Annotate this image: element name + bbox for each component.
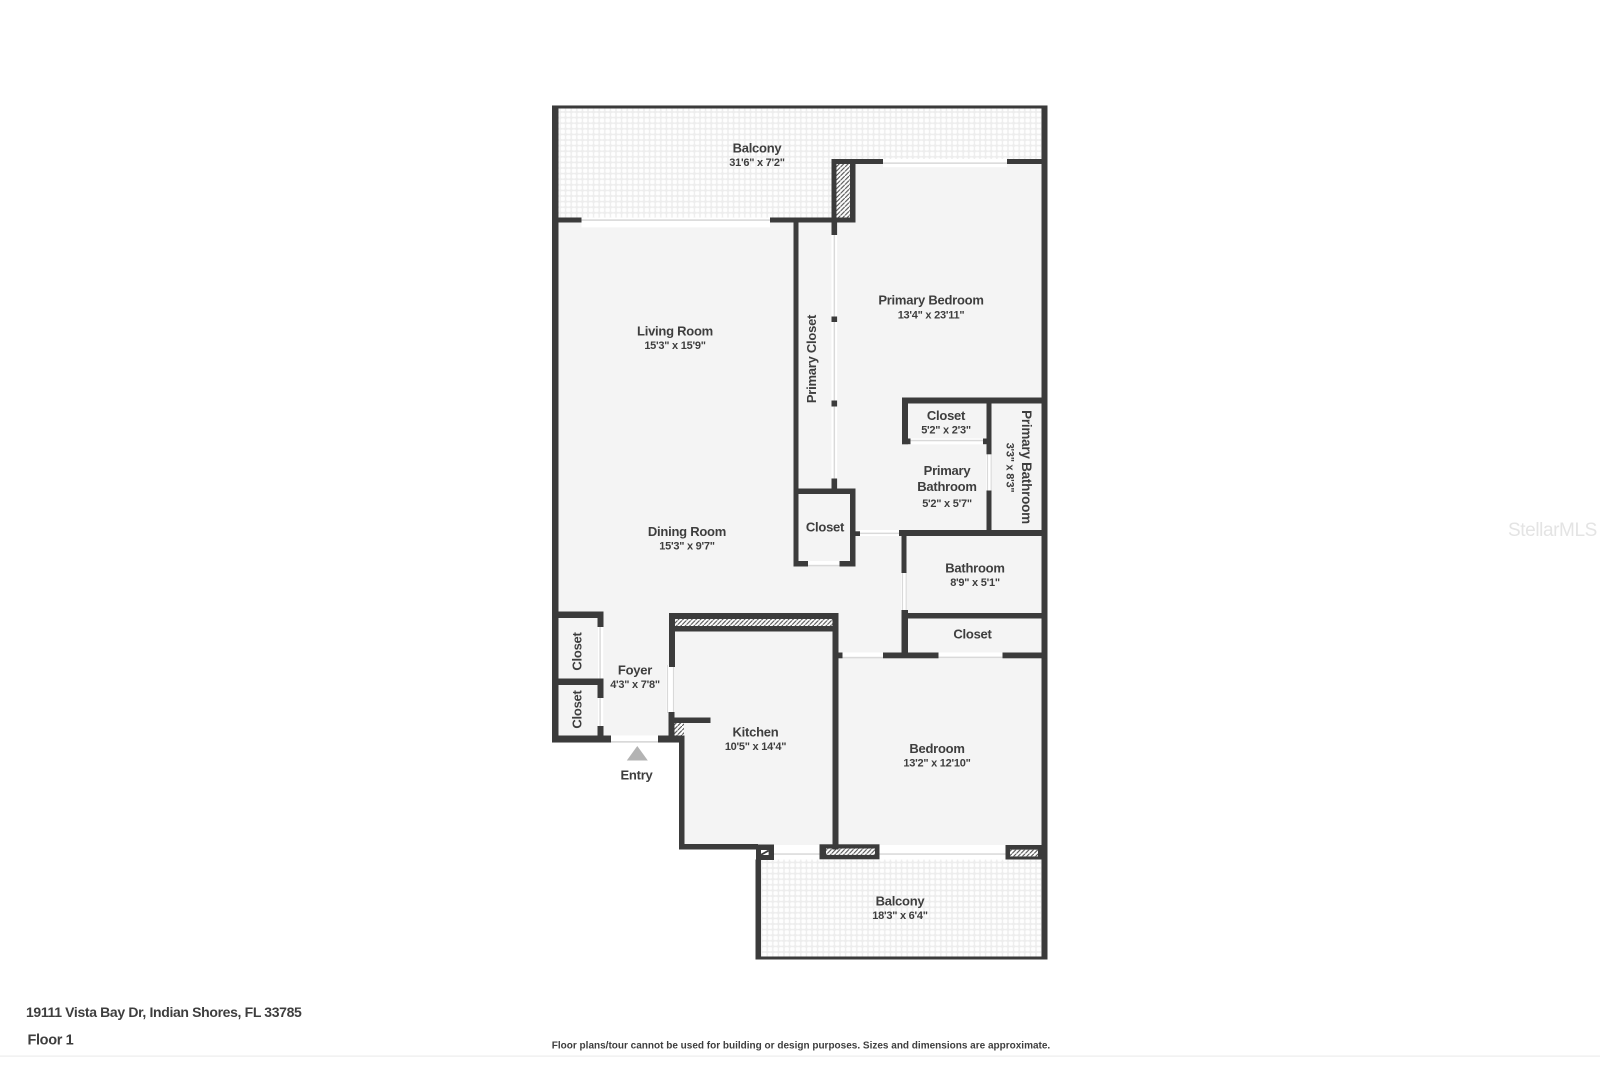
svg-text:Primary: Primary — [924, 463, 972, 478]
svg-text:3'3" x 8'3": 3'3" x 8'3" — [1004, 443, 1016, 493]
svg-text:Primary Closet: Primary Closet — [804, 314, 819, 403]
svg-text:Closet: Closet — [953, 627, 992, 642]
svg-text:18'3" x 6'4": 18'3" x 6'4" — [872, 910, 928, 922]
svg-text:13'2" x 12'10": 13'2" x 12'10" — [903, 757, 970, 769]
svg-text:10'5" x 14'4": 10'5" x 14'4" — [725, 741, 786, 753]
svg-text:Kitchen: Kitchen — [733, 725, 779, 740]
svg-text:15'3" x 9'7": 15'3" x 9'7" — [659, 540, 715, 552]
svg-text:5'2" x 5'7": 5'2" x 5'7" — [922, 498, 972, 510]
svg-text:Closet: Closet — [570, 631, 585, 670]
svg-text:31'6" x 7'2": 31'6" x 7'2" — [729, 157, 785, 169]
svg-text:Bathroom: Bathroom — [917, 479, 976, 494]
svg-text:Balcony: Balcony — [733, 141, 783, 156]
svg-text:Closet: Closet — [570, 689, 585, 728]
svg-text:StellarMLS: StellarMLS — [1508, 520, 1597, 541]
svg-text:15'3" x 15'9": 15'3" x 15'9" — [644, 340, 705, 352]
svg-text:Dining Room: Dining Room — [648, 524, 726, 539]
svg-text:Primary Bathroom: Primary Bathroom — [1019, 410, 1034, 524]
svg-text:Living Room: Living Room — [637, 324, 713, 339]
svg-text:Entry: Entry — [621, 768, 654, 783]
svg-text:Floor plans/tour cannot be use: Floor plans/tour cannot be used for buil… — [552, 1041, 1051, 1052]
svg-text:19111 Vista Bay Dr, Indian Sho: 19111 Vista Bay Dr, Indian Shores, FL 33… — [26, 1004, 302, 1020]
svg-text:Bedroom: Bedroom — [909, 741, 964, 756]
svg-text:Bathroom: Bathroom — [945, 561, 1004, 576]
svg-text:5'2" x 2'3": 5'2" x 2'3" — [921, 424, 971, 436]
svg-text:Closet: Closet — [806, 520, 845, 535]
svg-text:Balcony: Balcony — [876, 894, 926, 909]
svg-text:Floor 1: Floor 1 — [28, 1033, 74, 1049]
svg-text:Primary Bedroom: Primary Bedroom — [878, 293, 983, 308]
svg-text:13'4" x 23'11": 13'4" x 23'11" — [898, 309, 965, 321]
svg-text:8'9" x 5'1": 8'9" x 5'1" — [950, 577, 1000, 589]
svg-text:Closet: Closet — [927, 408, 966, 423]
svg-text:Foyer: Foyer — [618, 663, 652, 678]
svg-text:4'3" x 7'8": 4'3" x 7'8" — [610, 679, 660, 691]
